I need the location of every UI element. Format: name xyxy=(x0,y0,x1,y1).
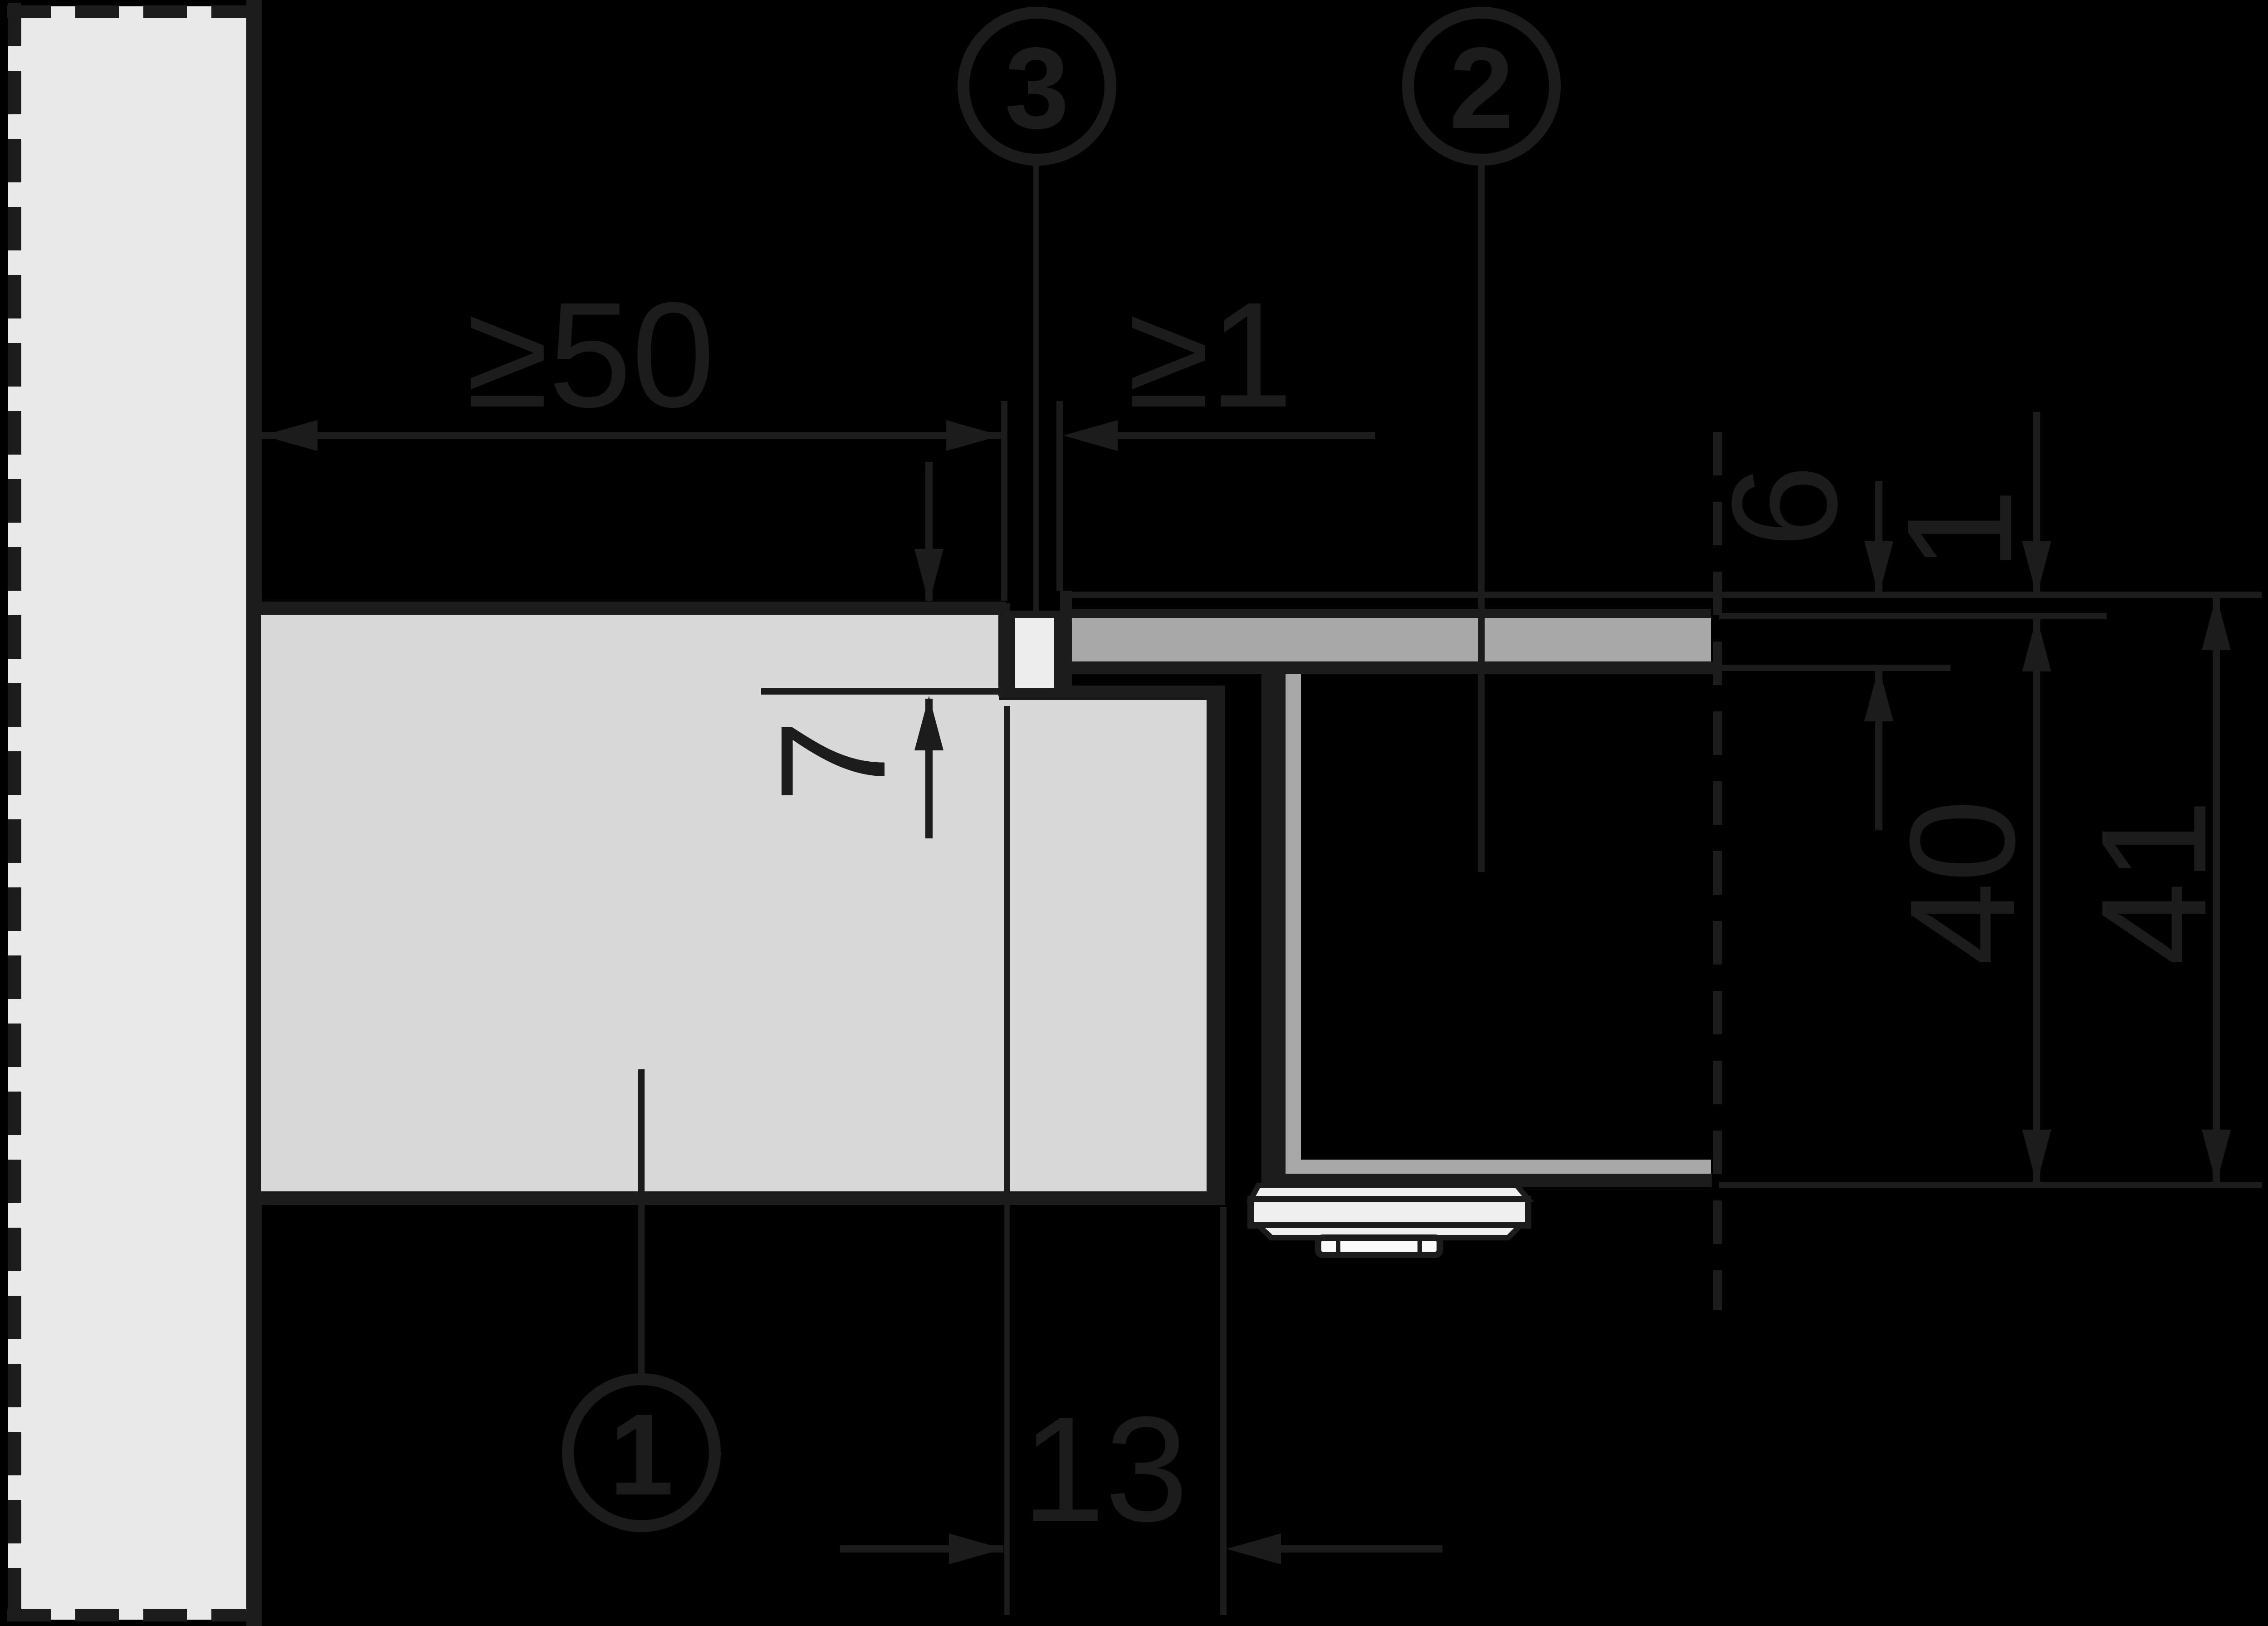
diagram-stage: ≥50 ≥1 7 6 1 40 xyxy=(0,0,2268,1626)
dim-label-front-gap: ≥1 xyxy=(1128,271,1293,438)
cooktop-body-bottom-lining xyxy=(1286,1160,1711,1175)
dim-label-depth41: 41 xyxy=(2070,799,2237,965)
cooktop-body-side-lining xyxy=(1286,674,1301,1167)
callout-number-1: 1 xyxy=(609,1390,674,1519)
callout-number-3: 3 xyxy=(1005,24,1069,153)
callout-number-2: 2 xyxy=(1449,24,1514,153)
clamp-body xyxy=(1251,1199,1528,1225)
worktop xyxy=(253,603,1225,1200)
cooktop-glass-fill xyxy=(1070,615,1711,663)
dim-label-left-clearance: ≥50 xyxy=(466,271,715,438)
dim-label-ledge-width: 13 xyxy=(1022,1385,1188,1553)
dim-label-recess-depth: 7 xyxy=(749,720,916,803)
dim-label-protrusion: 1 xyxy=(1876,488,2043,572)
seal-strip xyxy=(1012,614,1058,691)
wall xyxy=(7,0,254,1626)
installation-cross-section-diagram: ≥50 ≥1 7 6 1 40 xyxy=(0,0,2268,1626)
wall-fill xyxy=(8,6,250,1620)
dim-label-depth40: 40 xyxy=(1878,799,2046,965)
dim-label-glass-thickness: 6 xyxy=(1701,465,1868,548)
